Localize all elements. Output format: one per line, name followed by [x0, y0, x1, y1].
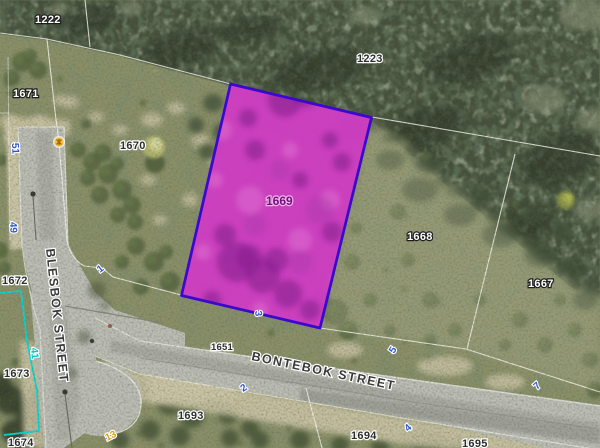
svg-text:1670: 1670 — [120, 140, 146, 152]
svg-text:49: 49 — [7, 222, 18, 234]
svg-text:1694: 1694 — [351, 430, 377, 442]
svg-text:1222: 1222 — [35, 14, 61, 26]
svg-text:1223: 1223 — [357, 53, 383, 65]
svg-text:1695: 1695 — [462, 438, 488, 448]
svg-text:1674: 1674 — [8, 437, 34, 448]
svg-text:1668: 1668 — [407, 231, 433, 243]
svg-text:1651: 1651 — [211, 342, 233, 353]
svg-text:1667: 1667 — [528, 278, 554, 290]
svg-text:1673: 1673 — [4, 368, 30, 380]
svg-text:1671: 1671 — [13, 88, 39, 100]
svg-text:1672: 1672 — [2, 275, 28, 287]
svg-text:1693: 1693 — [178, 410, 204, 422]
svg-text:1669: 1669 — [266, 194, 293, 208]
svg-text:41: 41 — [28, 347, 40, 359]
svg-text:51: 51 — [9, 143, 20, 155]
